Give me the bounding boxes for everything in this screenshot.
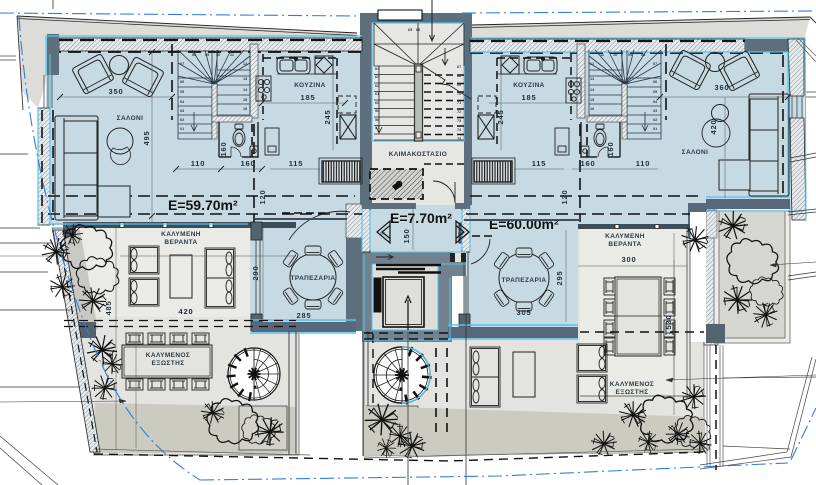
svg-text:13: 13 [590, 77, 594, 81]
svg-text:ΚΟΥΖΙΝΑ: ΚΟΥΖΙΝΑ [294, 82, 326, 89]
svg-text:ΣΑΛΟΝΙ: ΣΑΛΟΝΙ [117, 115, 144, 122]
svg-text:05: 05 [180, 90, 184, 94]
svg-text:160: 160 [241, 159, 256, 168]
svg-text:185: 185 [522, 93, 537, 102]
svg-text:245: 245 [496, 110, 505, 125]
svg-text:66: 66 [416, 28, 420, 32]
svg-text:115: 115 [532, 159, 547, 168]
svg-text:ΕΞΩΣΤΗΣ: ΕΞΩΣΤΗΣ [616, 389, 649, 396]
svg-text:ΚΛΙΜΑΚΟΣΤΑΣΙΟ: ΚΛΙΜΑΚΟΣΤΑΣΙΟ [389, 151, 447, 158]
svg-text:16: 16 [590, 107, 594, 111]
svg-text:E=7.70m²: E=7.70m² [390, 210, 452, 226]
svg-text:08: 08 [192, 53, 196, 57]
svg-text:E=60.00m²: E=60.00m² [489, 216, 559, 232]
svg-text:285: 285 [297, 311, 312, 320]
svg-text:73: 73 [457, 119, 461, 123]
svg-text:07: 07 [180, 62, 184, 66]
svg-text:16: 16 [243, 107, 247, 111]
svg-text:57: 57 [375, 126, 379, 130]
svg-text:72: 72 [457, 110, 461, 114]
svg-text:120: 120 [258, 190, 267, 205]
svg-text:61: 61 [375, 92, 379, 96]
svg-text:12: 12 [590, 62, 594, 66]
svg-text:185: 185 [301, 93, 316, 102]
svg-text:150: 150 [402, 229, 411, 244]
svg-text:305: 305 [517, 308, 532, 317]
svg-text:115: 115 [289, 159, 304, 168]
svg-text:11: 11 [230, 53, 234, 57]
svg-text:75: 75 [457, 137, 461, 141]
svg-text:ΚΑΛΥΜΕΝΟΣ: ΚΑΛΥΜΕΝΟΣ [610, 381, 654, 388]
svg-text:ΒΕΡΑΝΤΑ: ΒΕΡΑΝΤΑ [608, 241, 641, 248]
svg-text:10: 10 [613, 53, 617, 57]
svg-text:07: 07 [653, 62, 657, 66]
svg-text:ΕΞΩΣΤΗΣ: ΕΞΩΣΤΗΣ [152, 360, 185, 367]
svg-text:15: 15 [590, 98, 594, 102]
svg-text:E=59.70m²: E=59.70m² [168, 197, 238, 213]
svg-text:58: 58 [375, 118, 379, 122]
svg-text:12: 12 [243, 62, 247, 66]
svg-text:08: 08 [641, 53, 645, 57]
svg-text:350: 350 [109, 87, 124, 96]
svg-text:420: 420 [179, 307, 194, 316]
svg-text:68: 68 [457, 74, 461, 78]
svg-text:420: 420 [709, 120, 718, 135]
svg-text:03: 03 [653, 109, 657, 113]
svg-text:ΚΑΛΥΜΕΝΗ: ΚΑΛΥΜΕΝΗ [605, 233, 645, 240]
svg-text:03: 03 [180, 109, 184, 113]
svg-text:04: 04 [380, 231, 386, 236]
svg-text:495: 495 [142, 131, 151, 146]
svg-text:05: 05 [458, 231, 464, 236]
svg-text:ΤΡΑΠΕΖΑΡΙΑ: ΤΡΑΠΕΖΑΡΙΑ [290, 275, 335, 282]
svg-text:62: 62 [375, 84, 379, 88]
svg-text:63: 63 [375, 75, 379, 79]
svg-text:65: 65 [408, 28, 412, 32]
svg-text:09: 09 [205, 53, 209, 57]
svg-text:360: 360 [715, 83, 730, 92]
svg-text:02: 02 [653, 118, 657, 122]
svg-text:ΚΟΥΖΙΝΑ: ΚΟΥΖΙΝΑ [513, 82, 545, 89]
svg-text:ΚΑΛΥΜΕΝΗ: ΚΑΛΥΜΕΝΗ [161, 231, 201, 238]
svg-text:245: 245 [323, 110, 332, 125]
svg-text:160: 160 [219, 142, 228, 157]
svg-text:59: 59 [375, 109, 379, 113]
svg-text:01: 01 [653, 127, 657, 131]
svg-text:67: 67 [457, 65, 461, 69]
svg-text:ΤΡΑΠΕΖΑΡΙΑ: ΤΡΑΠΕΖΑΡΙΑ [501, 277, 546, 284]
svg-text:01: 01 [180, 127, 184, 131]
svg-text:06: 06 [653, 80, 657, 84]
svg-text:70: 70 [457, 92, 461, 96]
svg-text:09: 09 [628, 53, 632, 57]
svg-text:300: 300 [622, 255, 637, 264]
svg-text:71: 71 [457, 101, 461, 105]
svg-text:ΒΕΡΑΝΤΑ: ΒΕΡΑΝΤΑ [164, 239, 197, 246]
svg-text:06: 06 [180, 80, 184, 84]
svg-text:60: 60 [375, 101, 379, 105]
svg-text:ΣΑΛΟΝΙ: ΣΑΛΟΝΙ [682, 149, 709, 156]
svg-text:110: 110 [636, 159, 651, 168]
svg-text:290: 290 [251, 266, 260, 281]
svg-text:485: 485 [104, 301, 113, 316]
svg-text:10: 10 [216, 53, 220, 57]
svg-text:11: 11 [600, 53, 604, 57]
svg-text:ΚΑΛΥΜΕΝΟΣ: ΚΑΛΥΜΕΝΟΣ [146, 352, 190, 359]
svg-text:02: 02 [180, 118, 184, 122]
svg-text:160: 160 [581, 159, 596, 168]
svg-text:15: 15 [243, 98, 247, 102]
svg-text:13: 13 [243, 77, 247, 81]
svg-text:530: 530 [664, 315, 673, 330]
svg-text:69: 69 [457, 83, 461, 87]
svg-text:110: 110 [191, 159, 206, 168]
svg-text:05: 05 [653, 90, 657, 94]
svg-text:120: 120 [560, 190, 569, 205]
svg-text:295: 295 [555, 271, 564, 286]
svg-text:160: 160 [606, 142, 615, 157]
